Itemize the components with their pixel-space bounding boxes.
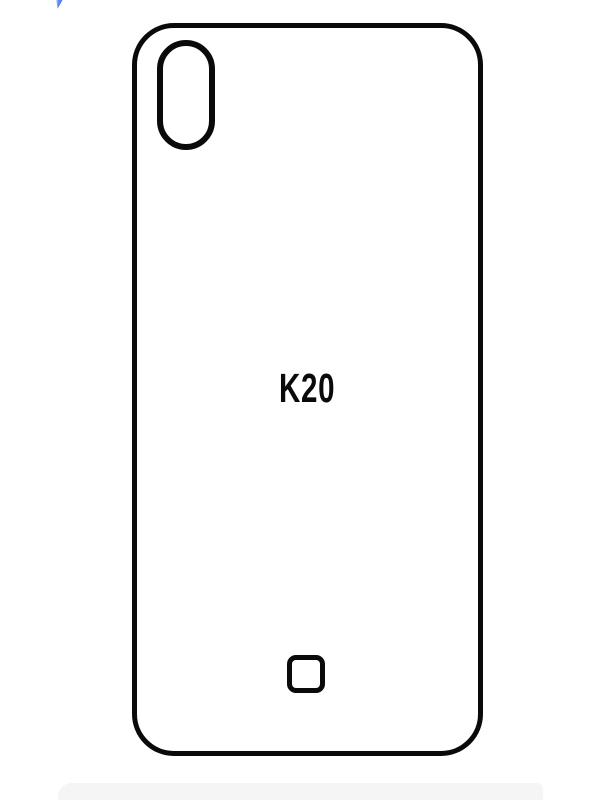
fingerprint-cutout-icon [287,655,325,693]
product-template-canvas: K20 [0,0,600,800]
camera-cutout-icon [157,40,215,150]
footer-surface [58,783,543,800]
phone-model-label: K20 [279,368,335,409]
cursor-fragment-icon [54,0,66,11]
phone-model-label-wrap: K20 [132,360,483,416]
